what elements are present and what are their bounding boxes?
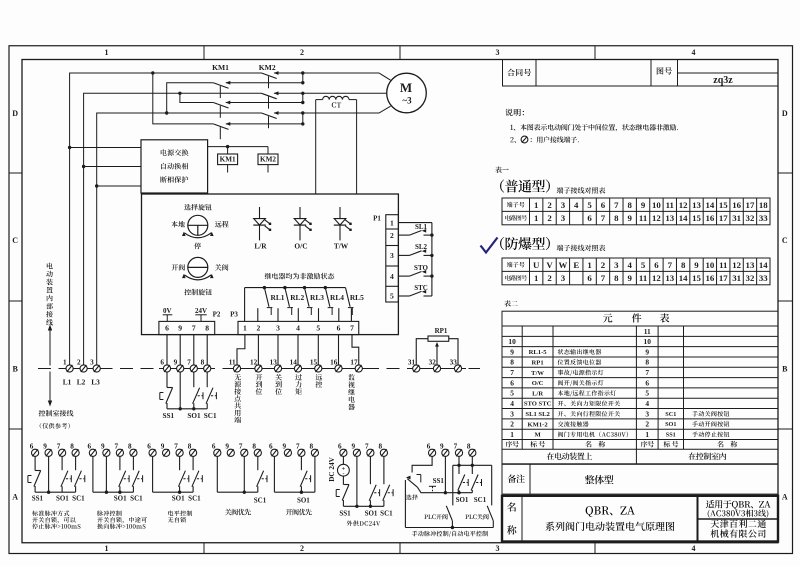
svg-text:7: 7 [601,273,606,283]
svg-text:SO1: SO1 [172,495,185,503]
svg-text:9: 9 [645,347,649,356]
svg-text:9: 9 [628,273,633,283]
svg-text:7: 7 [115,442,119,450]
svg-text:E: E [573,260,579,270]
svg-text:KM2: KM2 [259,63,276,72]
svg-text:33: 33 [450,359,458,367]
svg-text:SS1: SS1 [433,477,445,485]
svg-text:10: 10 [644,337,652,346]
svg-text:6: 6 [88,442,92,450]
svg-text:~3: ~3 [402,96,412,106]
svg-text:1: 1 [63,359,67,367]
svg-text:7: 7 [510,368,514,377]
svg-text:6: 6 [587,213,592,223]
svg-text:KM1-2: KM1-2 [528,421,549,428]
svg-text:16: 16 [705,213,714,223]
svg-text:32: 32 [429,359,437,367]
svg-text:7: 7 [614,200,619,210]
svg-text:3: 3 [614,260,619,270]
svg-text:9: 9 [43,442,47,450]
svg-text:RL1: RL1 [271,293,285,302]
svg-text:7: 7 [645,368,649,377]
svg-text:7: 7 [239,442,243,450]
svg-text:8: 8 [201,359,205,367]
svg-text:7: 7 [365,442,369,450]
svg-text:8: 8 [188,442,192,450]
svg-text:6: 6 [654,260,659,270]
svg-text:8: 8 [252,442,256,450]
svg-text:33: 33 [759,273,768,283]
svg-text:11: 11 [639,273,647,283]
svg-text:zq3z: zq3z [713,75,733,86]
svg-text:6: 6 [587,273,592,283]
svg-text:9: 9 [161,442,165,450]
svg-text:17: 17 [350,359,358,367]
svg-text:1: 1 [645,430,649,439]
svg-text:7: 7 [350,324,354,333]
svg-text:9: 9 [225,442,229,450]
svg-text:7: 7 [601,213,606,223]
svg-text:2: 2 [390,231,394,240]
svg-text:7: 7 [454,442,458,450]
svg-text:RL1-5: RL1-5 [529,349,548,356]
svg-text:33: 33 [759,213,768,223]
svg-text:SO1: SO1 [297,496,310,504]
svg-text:SC1: SC1 [204,412,217,420]
svg-text:2: 2 [257,324,261,333]
svg-text:L2: L2 [77,377,86,386]
svg-text:14: 14 [759,260,768,270]
svg-text:C: C [782,236,788,245]
svg-text:5: 5 [645,389,649,398]
svg-text:24V: 24V [195,307,207,315]
svg-text:A: A [782,492,788,501]
svg-text:SC1: SC1 [380,509,393,517]
svg-text:2: 2 [77,359,81,367]
svg-text:9: 9 [440,442,444,450]
svg-text:P2: P2 [213,310,221,318]
svg-text:7: 7 [668,260,673,270]
svg-text:4: 4 [510,399,514,408]
svg-text:13: 13 [665,273,674,283]
svg-text:SO1: SO1 [56,495,69,503]
svg-text:9: 9 [641,200,646,210]
svg-text:L/R: L/R [254,242,267,251]
svg-text:2: 2 [547,200,552,210]
svg-text:7: 7 [192,324,196,333]
svg-text:11: 11 [719,260,727,270]
svg-text:15: 15 [692,213,701,223]
svg-text:15: 15 [310,359,318,367]
svg-text:RL2: RL2 [290,293,304,302]
svg-text:8: 8 [510,358,514,367]
svg-text:SS1: SS1 [666,432,676,439]
svg-text:8: 8 [379,442,383,450]
svg-text:V: V [546,260,553,270]
svg-text:2: 2 [300,544,304,553]
svg-text:5: 5 [316,324,320,333]
svg-text:SO1: SO1 [456,496,469,504]
svg-text:4: 4 [574,200,579,210]
svg-text:3: 3 [90,359,94,367]
svg-text:STO STC: STO STC [524,401,552,408]
svg-text:T/W: T/W [531,370,544,377]
svg-text:8: 8 [628,200,633,210]
svg-text:3: 3 [510,409,514,418]
svg-text:5: 5 [641,260,646,270]
svg-text:14: 14 [679,213,688,223]
svg-text:2: 2 [601,260,606,270]
svg-text:RP1: RP1 [435,327,448,335]
svg-text:SO1: SO1 [187,412,201,420]
svg-text:D: D [782,109,788,118]
svg-text:P1: P1 [373,214,381,222]
svg-text:32: 32 [746,213,755,223]
svg-text:10: 10 [652,200,661,210]
svg-text:RL5: RL5 [350,293,364,302]
svg-text:SC1: SC1 [665,411,676,418]
svg-text:13: 13 [692,200,701,210]
svg-text:5: 5 [510,389,514,398]
svg-text:12: 12 [652,273,661,283]
svg-text:6: 6 [165,324,169,333]
svg-text:SO1: SO1 [365,509,378,517]
svg-text:1: 1 [534,273,538,283]
svg-text:SO1: SO1 [665,421,676,428]
svg-text:RL4: RL4 [330,293,344,302]
svg-text:7: 7 [174,442,178,450]
svg-text:8: 8 [681,260,686,270]
svg-text:C: C [12,236,18,245]
svg-text:12: 12 [250,359,258,367]
svg-text:1: 1 [105,544,109,553]
svg-text:RL3: RL3 [310,293,324,302]
svg-text:4: 4 [692,48,696,57]
svg-text:3: 3 [561,213,566,223]
svg-text:6: 6 [510,378,514,387]
svg-text:14: 14 [290,359,298,367]
svg-text:KM1: KM1 [212,63,229,72]
svg-text:3: 3 [645,409,649,418]
svg-text:6: 6 [160,359,164,367]
svg-text:U: U [533,260,540,270]
svg-text:15: 15 [692,273,701,283]
svg-text:8: 8 [205,324,209,333]
svg-text:3: 3 [276,324,280,333]
svg-text:6: 6 [337,324,341,333]
svg-text:16: 16 [732,200,741,210]
svg-text:11: 11 [644,327,651,336]
svg-text:17: 17 [719,213,728,223]
svg-text:L3: L3 [91,377,100,386]
svg-text:4: 4 [628,260,633,270]
svg-text:B: B [782,364,788,373]
svg-text:SS1: SS1 [339,509,351,517]
svg-text:6: 6 [601,200,606,210]
svg-text:31: 31 [732,213,741,223]
svg-text:DC 24V: DC 24V [328,456,336,481]
svg-text:1: 1 [534,200,538,210]
svg-text:9: 9 [628,213,633,223]
svg-text:SL1: SL1 [415,223,428,231]
svg-text:1: 1 [390,218,394,227]
svg-text:9: 9 [352,442,356,450]
svg-text:10: 10 [508,337,516,346]
svg-text:4: 4 [296,324,300,333]
svg-text:O/C: O/C [294,242,307,251]
svg-text:SO1: SO1 [114,495,127,503]
svg-text:9: 9 [694,260,699,270]
svg-text:13: 13 [746,260,755,270]
svg-text:6: 6 [212,442,216,450]
svg-text:KM1: KM1 [220,156,236,164]
svg-text:L/R: L/R [532,390,543,397]
svg-text:SC1: SC1 [130,495,143,503]
svg-text:SC1: SC1 [72,495,85,503]
svg-text:15: 15 [719,200,728,210]
svg-text:12: 12 [652,213,661,223]
svg-text:1: 1 [587,260,591,270]
svg-text:10: 10 [705,260,714,270]
svg-text:8: 8 [645,358,649,367]
svg-text:STC: STC [414,284,428,292]
svg-text:12: 12 [732,260,741,270]
svg-text:5: 5 [390,292,394,301]
svg-text:9: 9 [178,324,182,333]
svg-text:31: 31 [408,359,416,367]
svg-text:1: 1 [534,213,538,223]
svg-text:5: 5 [587,200,592,210]
svg-text:9: 9 [510,347,514,356]
svg-text:13: 13 [665,213,674,223]
svg-text:SL1 SL2: SL1 SL2 [525,411,550,418]
svg-text:12: 12 [679,200,688,210]
svg-text:SS1: SS1 [163,412,175,420]
svg-text:6: 6 [338,442,342,450]
svg-text:SC1: SC1 [254,496,267,504]
svg-text:2: 2 [547,213,552,223]
svg-text:2: 2 [300,48,304,57]
svg-text:13: 13 [270,359,278,367]
svg-text:SC1: SC1 [474,496,487,504]
svg-text:2: 2 [547,273,552,283]
svg-text:14: 14 [705,200,714,210]
svg-text:0V: 0V [163,307,172,315]
svg-text:4: 4 [645,399,649,408]
svg-text:16: 16 [330,359,338,367]
svg-text:16: 16 [705,273,714,283]
svg-text:7: 7 [296,442,300,450]
svg-text:9: 9 [283,442,287,450]
svg-text:3: 3 [390,251,394,260]
svg-text:T/W: T/W [334,242,349,251]
svg-text:6: 6 [147,442,151,450]
svg-text:14: 14 [679,273,688,283]
svg-text:4: 4 [692,544,696,553]
svg-text:3: 3 [496,544,500,553]
svg-text:O/C: O/C [532,380,544,387]
svg-text:STO: STO [414,264,428,272]
svg-text:8: 8 [70,442,74,450]
svg-text:D: D [12,109,18,118]
svg-text:11: 11 [229,359,236,367]
svg-text:32: 32 [746,273,755,283]
svg-text:8: 8 [467,442,471,450]
svg-text:SC1: SC1 [188,495,201,503]
svg-text:8: 8 [614,213,619,223]
svg-text:2: 2 [510,420,514,429]
svg-text:11: 11 [666,200,674,210]
svg-text:31: 31 [732,273,741,283]
svg-text:7: 7 [57,442,61,450]
svg-text:M: M [534,432,541,439]
svg-text:3: 3 [496,48,500,57]
svg-text:6: 6 [645,378,649,387]
svg-text:1: 1 [510,430,514,439]
svg-text:RP1: RP1 [532,359,544,366]
svg-text:6: 6 [30,442,34,450]
svg-text:8: 8 [128,442,132,450]
svg-text:7: 7 [187,359,191,367]
svg-text:4: 4 [390,272,394,281]
svg-text:KM2: KM2 [260,156,276,164]
svg-text:8: 8 [310,442,314,450]
svg-text:3: 3 [561,200,566,210]
svg-text:B: B [13,364,19,373]
svg-text:9: 9 [101,442,105,450]
svg-text:A: A [12,492,18,501]
svg-text:11: 11 [639,213,647,223]
svg-text:2: 2 [645,420,649,429]
svg-text:8: 8 [614,273,619,283]
svg-text:P3: P3 [230,310,238,318]
svg-text:L1: L1 [63,377,72,386]
svg-text:17: 17 [746,200,755,210]
svg-text:18: 18 [759,200,768,210]
svg-text:W: W [559,260,568,270]
svg-text:1: 1 [243,324,247,333]
svg-text:6: 6 [427,442,431,450]
svg-text:3: 3 [561,273,566,283]
svg-text:6: 6 [269,442,273,450]
svg-text:1: 1 [105,48,109,57]
svg-text:17: 17 [719,273,728,283]
svg-text:9: 9 [174,359,178,367]
svg-text:SS1: SS1 [32,495,44,503]
svg-text:SL2: SL2 [415,243,428,251]
svg-text:M: M [400,80,412,95]
